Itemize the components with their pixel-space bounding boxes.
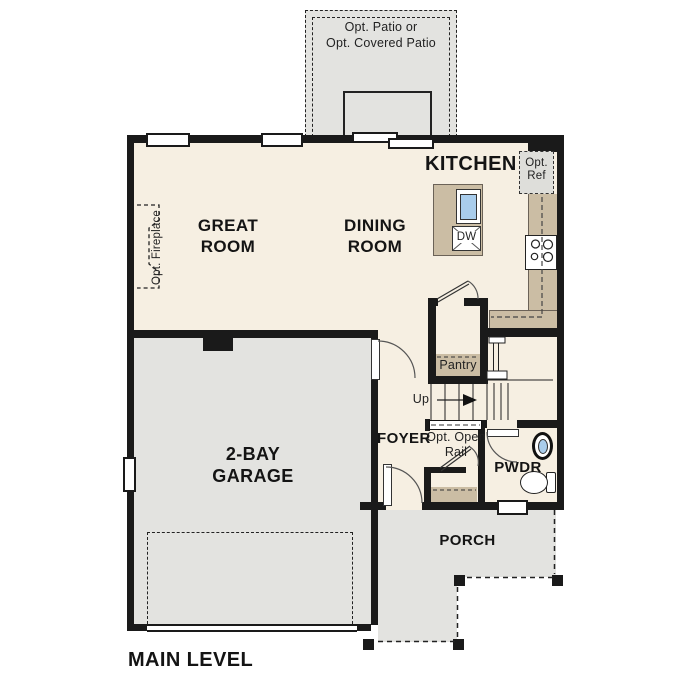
wall-closet-top [424, 467, 466, 473]
porch-post-mid [454, 575, 465, 586]
fireplace-label: Opt. Fireplace [151, 200, 167, 294]
wall-garage-bump [203, 338, 233, 351]
open-rail-label-line2: Rail [420, 445, 492, 459]
great-room-label-line2: ROOM [165, 237, 291, 257]
great-room-label-line1: GREAT [165, 216, 291, 236]
wall-pantry-top-right-stub [464, 298, 488, 306]
garage-entry-door-leaf [371, 339, 380, 380]
dining-room-label-line1: DINING [315, 216, 435, 236]
dishwasher-label: DW [453, 231, 480, 243]
porch-post-sw [363, 639, 374, 650]
wall-right [557, 143, 564, 509]
plan-title: MAIN LEVEL [128, 649, 348, 672]
opt-ref-label-line2: Ref [519, 170, 554, 182]
window-garage-side [123, 457, 136, 492]
foyer-label: FOYER [377, 430, 429, 447]
garage-door-swing-outline [147, 532, 353, 624]
pwdr-door-opening [487, 420, 517, 428]
stairs-up-label: Up [409, 392, 433, 406]
porch-post-se [453, 639, 464, 650]
pwdr-sink-basin [538, 439, 548, 454]
patio-label-line1: Opt. Patio or [305, 20, 457, 34]
floor-plan: Opt. Patio or Opt. Covered Patio KITCHEN… [0, 0, 687, 687]
porch-post-ne [552, 575, 563, 586]
wall-garage-greatroom [131, 330, 378, 338]
island-sink-basin [460, 194, 477, 220]
window-great-room [146, 133, 190, 147]
kitchen-label: KITCHEN [425, 153, 515, 176]
wall-pantry-top-left-stub [428, 298, 438, 306]
pwdr-label: PWDR [494, 459, 542, 476]
patio-stoop [343, 91, 432, 137]
wall-pantry-bottom [428, 376, 488, 384]
window-pwdr [497, 500, 528, 515]
wall-kitchen-bottom [482, 328, 564, 337]
porch-floor-lower [378, 577, 457, 642]
stove-box [525, 235, 557, 270]
garage-label-line1: 2-BAY [179, 444, 327, 465]
dining-room-label-line2: ROOM [315, 237, 435, 257]
patio-slider-right [388, 138, 434, 149]
closet-shelf [431, 487, 477, 502]
stair-rail-strip [429, 420, 482, 430]
front-door-leaf [383, 464, 392, 506]
porch-label: PORCH [420, 532, 515, 549]
wall-top [127, 135, 564, 143]
garage-door [147, 624, 357, 632]
patio-label-line2: Opt. Covered Patio [305, 36, 457, 50]
wall-left [127, 135, 134, 631]
garage-label-line2: GARAGE [179, 466, 327, 487]
kitchen-counter-return [489, 310, 557, 328]
window-dining [261, 133, 303, 147]
pantry-label: Pantry [428, 358, 488, 372]
opt-ref-label-line1: Opt. [519, 157, 554, 169]
open-rail-label-line1: Opt. Open [420, 430, 492, 444]
